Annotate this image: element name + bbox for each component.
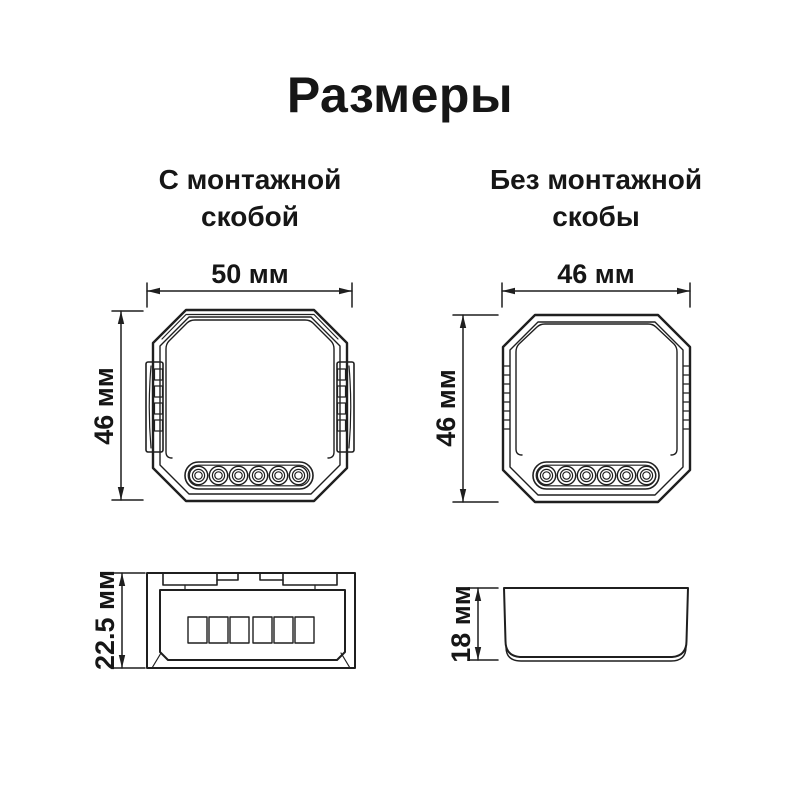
dim-right-width: 46 мм xyxy=(557,259,634,289)
dim-left-height: 46 мм xyxy=(89,367,119,444)
lid-seam xyxy=(166,320,334,458)
left-side-view: 22.5 мм xyxy=(90,570,355,670)
right-side-dimension: 18 мм xyxy=(446,585,498,662)
technical-drawing: 50 мм 46 мм xyxy=(0,0,800,800)
left-side-dimension: 22.5 мм xyxy=(90,570,145,670)
dim-right-height: 46 мм xyxy=(431,369,461,446)
terminal-openings xyxy=(188,617,314,643)
dim-left-depth: 22.5 мм xyxy=(90,570,120,670)
terminal-holes xyxy=(189,466,307,484)
bracket-hooks xyxy=(163,573,337,590)
terminal-strip xyxy=(533,462,659,489)
right-side-view: 18 мм xyxy=(446,585,688,662)
dimensions-diagram: Размеры С монтажной скобой Без монтажной… xyxy=(0,0,800,800)
device-outline xyxy=(503,315,690,502)
terminal-holes xyxy=(537,466,655,484)
terminal-strip xyxy=(185,462,313,489)
left-top-dimensions: 50 мм 46 мм xyxy=(89,259,352,500)
bottom-lip xyxy=(506,647,686,661)
right-top-view: 46 мм 46 мм xyxy=(431,259,690,502)
bracket-outline xyxy=(147,573,355,668)
left-top-view: 50 мм 46 мм xyxy=(89,259,354,501)
device-body-side xyxy=(504,588,688,657)
dim-right-depth: 18 мм xyxy=(446,585,476,662)
lid-seam xyxy=(516,324,677,455)
dim-left-width: 50 мм xyxy=(211,259,288,289)
edge-ridges xyxy=(505,366,689,429)
